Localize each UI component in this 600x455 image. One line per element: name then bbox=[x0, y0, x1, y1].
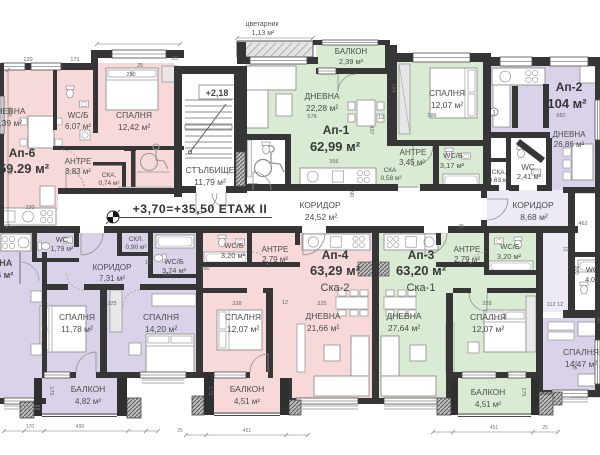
svg-text:СКА.: СКА. bbox=[102, 172, 117, 179]
svg-text:АНТРЕ: АНТРЕ bbox=[454, 245, 481, 254]
svg-text:ДНЕВНА: ДНЕВНА bbox=[0, 258, 13, 268]
svg-text:21,66 м²: 21,66 м² bbox=[307, 323, 339, 333]
svg-text:КОРИДОР: КОРИДОР bbox=[512, 200, 554, 210]
svg-text:3,17 м²: 3,17 м² bbox=[440, 161, 465, 170]
svg-text:WC/Б: WC/Б bbox=[224, 241, 244, 250]
svg-text:БАЛКОН: БАЛКОН bbox=[71, 384, 105, 394]
svg-text:462: 462 bbox=[578, 221, 587, 227]
svg-text:ДНЕВНА: ДНЕВНА bbox=[553, 130, 587, 139]
svg-text:БАЛКОН: БАЛКОН bbox=[230, 384, 264, 394]
svg-text:1,79 м²: 1,79 м² bbox=[51, 246, 74, 253]
svg-text:328: 328 bbox=[232, 301, 241, 307]
svg-text:325: 325 bbox=[317, 301, 326, 307]
svg-text:6,07 м²: 6,07 м² bbox=[65, 122, 91, 131]
svg-text:325: 325 bbox=[107, 301, 116, 307]
svg-text:WC/Б: WC/Б bbox=[443, 151, 463, 160]
svg-text:+2,18: +2,18 bbox=[206, 88, 229, 98]
svg-text:СПАЛНЯ: СПАЛНЯ bbox=[470, 312, 506, 322]
svg-text:КОРИДОР: КОРИДОР bbox=[299, 200, 341, 210]
svg-text:90: 90 bbox=[348, 191, 354, 197]
svg-text:290: 290 bbox=[126, 72, 135, 78]
svg-text:25: 25 bbox=[542, 425, 548, 431]
svg-text:Ап-1: Ап-1 bbox=[323, 123, 350, 137]
svg-text:Ска-1: Ска-1 bbox=[407, 282, 436, 294]
svg-text:175: 175 bbox=[207, 386, 213, 395]
svg-text:8,68 м²: 8,68 м² bbox=[520, 212, 548, 222]
svg-text:БАЛКОН: БАЛКОН bbox=[335, 47, 368, 56]
svg-text:4,05: 4,05 bbox=[585, 277, 599, 284]
svg-text:1,13 м²: 1,13 м² bbox=[252, 30, 275, 37]
svg-text:4,51 м²: 4,51 м² bbox=[234, 397, 260, 406]
svg-text:12,42 м²: 12,42 м² bbox=[118, 122, 150, 132]
svg-text:СКА: СКА bbox=[384, 167, 397, 174]
svg-text:12: 12 bbox=[378, 115, 384, 121]
svg-text:14,47 м²: 14,47 м² bbox=[565, 359, 597, 369]
svg-text:СПАЛНЯ: СПАЛНЯ bbox=[143, 312, 179, 322]
svg-text:27,64 м²: 27,64 м² bbox=[388, 323, 420, 333]
svg-text:451: 451 bbox=[490, 425, 499, 431]
svg-text:WC: WC bbox=[521, 163, 535, 172]
svg-text:2,39 м²: 2,39 м² bbox=[339, 57, 364, 66]
svg-text:25: 25 bbox=[177, 428, 183, 434]
svg-text:180: 180 bbox=[162, 272, 171, 278]
svg-text:СПАЛНЯ: СПАЛНЯ bbox=[225, 312, 261, 322]
svg-text:104 м²: 104 м² bbox=[547, 96, 587, 111]
svg-text:18,96 м²: 18,96 м² bbox=[0, 270, 13, 280]
svg-text:0,90 м²: 0,90 м² bbox=[125, 244, 147, 251]
svg-text:520: 520 bbox=[6, 165, 12, 174]
svg-text:330: 330 bbox=[25, 205, 34, 211]
svg-text:12,07 м²: 12,07 м² bbox=[431, 100, 463, 110]
svg-text:386: 386 bbox=[427, 113, 436, 119]
svg-text:2,79 м²: 2,79 м² bbox=[454, 255, 480, 264]
svg-text:WC/Б: WC/Б bbox=[68, 111, 89, 120]
svg-text:0,58 м²: 0,58 м² bbox=[380, 175, 402, 182]
svg-text:цветарник: цветарник bbox=[245, 21, 279, 28]
svg-text:Ска-2: Ска-2 bbox=[321, 282, 350, 294]
svg-text:90: 90 bbox=[595, 317, 600, 323]
svg-text:СКЛ.: СКЛ. bbox=[129, 236, 144, 243]
svg-text:190: 190 bbox=[200, 266, 209, 272]
svg-text:4,51 м²: 4,51 м² bbox=[475, 400, 501, 409]
svg-text:171: 171 bbox=[70, 57, 79, 63]
svg-text:578: 578 bbox=[307, 114, 316, 120]
svg-text:0,74 м²: 0,74 м² bbox=[98, 180, 120, 187]
svg-text:17,39 м²: 17,39 м² bbox=[0, 118, 22, 128]
svg-text:12: 12 bbox=[282, 300, 288, 306]
svg-text:ДНЕВНА: ДНЕВНА bbox=[386, 311, 421, 321]
svg-text:3,83 м²: 3,83 м² bbox=[65, 167, 91, 176]
svg-text:14,20 м²: 14,20 м² bbox=[145, 324, 177, 334]
svg-text:АНТРЕ: АНТРЕ bbox=[65, 157, 92, 166]
svg-text:300: 300 bbox=[573, 265, 579, 274]
svg-text:АНТРЕ: АНТРЕ bbox=[400, 148, 427, 157]
svg-text:WC/Б: WC/Б bbox=[164, 257, 184, 266]
svg-text:Ап-3: Ап-3 bbox=[408, 248, 435, 262]
svg-text:437: 437 bbox=[368, 125, 374, 134]
svg-text:25: 25 bbox=[137, 63, 143, 69]
svg-text:СПАЛНЯ: СПАЛНЯ bbox=[116, 110, 152, 120]
svg-text:175: 175 bbox=[520, 387, 526, 396]
svg-text:200: 200 bbox=[571, 360, 577, 369]
svg-text:124: 124 bbox=[390, 83, 396, 92]
svg-text:7,31 м²: 7,31 м² bbox=[99, 274, 125, 283]
svg-text:682: 682 bbox=[556, 113, 565, 119]
svg-text:12,07 м²: 12,07 м² bbox=[227, 324, 259, 334]
svg-text:+3,70=+35,50 ЕТАЖ II: +3,70=+35,50 ЕТАЖ II bbox=[133, 202, 268, 216]
svg-text:СПАЛНЯ: СПАЛНЯ bbox=[59, 312, 95, 322]
svg-text:45: 45 bbox=[458, 224, 464, 230]
svg-text:3,20 м²: 3,20 м² bbox=[497, 252, 522, 261]
svg-text:3,20 м²: 3,20 м² bbox=[221, 251, 246, 260]
svg-text:12,07 м²: 12,07 м² bbox=[472, 324, 504, 334]
svg-text:451: 451 bbox=[243, 428, 252, 434]
svg-text:175: 175 bbox=[48, 386, 54, 395]
svg-text:WC: WC bbox=[586, 265, 599, 274]
svg-text:22: 22 bbox=[563, 247, 569, 253]
svg-text:Ап-2: Ап-2 bbox=[556, 80, 583, 94]
svg-text:СКА.: СКА. bbox=[492, 169, 507, 176]
svg-text:СПАЛНЯ: СПАЛНЯ bbox=[429, 88, 465, 98]
svg-text:12: 12 bbox=[145, 260, 151, 266]
svg-text:3,45 м²: 3,45 м² bbox=[399, 158, 425, 167]
svg-text:62,99 м²: 62,99 м² bbox=[310, 139, 361, 154]
svg-text:WC: WC bbox=[56, 235, 69, 244]
svg-text:112 12: 112 12 bbox=[547, 302, 563, 308]
svg-text:26,86 м²: 26,86 м² bbox=[554, 140, 585, 149]
svg-text:АНТРЕ: АНТРЕ bbox=[262, 245, 289, 254]
svg-text:25: 25 bbox=[172, 56, 178, 62]
svg-text:24,52 м²: 24,52 м² bbox=[305, 212, 337, 222]
svg-text:КОРИДОР: КОРИДОР bbox=[93, 263, 132, 272]
svg-text:22,28 м²: 22,28 м² bbox=[306, 103, 338, 113]
svg-text:0,63 м²: 0,63 м² bbox=[488, 177, 510, 184]
svg-text:356: 356 bbox=[329, 159, 338, 165]
svg-text:328: 328 bbox=[482, 301, 491, 307]
svg-text:WC/Б: WC/Б bbox=[500, 242, 520, 251]
svg-text:ДНЕВНА: ДНЕВНА bbox=[304, 91, 339, 101]
svg-text:Ап-6: Ап-6 bbox=[9, 146, 36, 160]
svg-text:БАЛКОН: БАЛКОН bbox=[471, 387, 505, 397]
svg-text:Ап-4: Ап-4 bbox=[322, 248, 349, 262]
svg-text:4,82 м²: 4,82 м² bbox=[75, 397, 101, 406]
svg-text:СТЪЛБИЩЕ: СТЪЛБИЩЕ bbox=[186, 165, 235, 175]
svg-text:2,41 м²: 2,41 м² bbox=[517, 172, 542, 181]
svg-text:11,79 м²: 11,79 м² bbox=[194, 177, 226, 187]
svg-text:СПАЛНЯ: СПАЛНЯ bbox=[563, 347, 599, 357]
svg-text:120: 120 bbox=[23, 57, 32, 63]
svg-text:170: 170 bbox=[26, 424, 35, 430]
svg-text:ДНЕВНА: ДНЕВНА bbox=[305, 311, 340, 321]
svg-text:11,78 м²: 11,78 м² bbox=[61, 324, 93, 334]
svg-text:63,20 м²: 63,20 м² bbox=[396, 263, 447, 278]
svg-text:690: 690 bbox=[6, 107, 12, 116]
svg-text:490: 490 bbox=[76, 424, 85, 430]
svg-text:63,29 м²: 63,29 м² bbox=[310, 263, 361, 278]
